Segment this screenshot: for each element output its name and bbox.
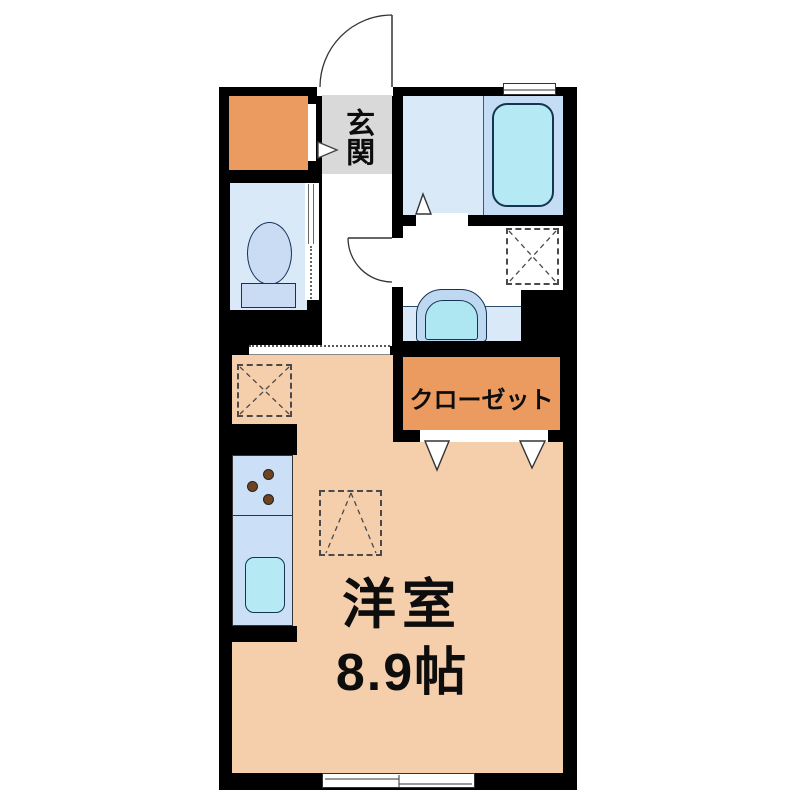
closet-label: クローゼット	[403, 380, 560, 415]
main-room-size: 8.9帖	[232, 630, 572, 705]
floorplan-page: 玄関 クローゼット 洋室 8.9帖	[0, 0, 800, 800]
entrance-label: 玄関	[322, 102, 392, 172]
closet-folding-door-triangle	[425, 441, 449, 470]
washroom-door-arc	[348, 238, 392, 282]
entrance-door-arc	[320, 15, 392, 87]
bathroom-door-triangle	[416, 194, 431, 214]
closet-folding-door-triangle	[520, 441, 545, 468]
main-room-name: 洋室	[232, 560, 572, 639]
loft-marker-caret	[351, 493, 376, 553]
loft-marker-caret	[326, 493, 351, 553]
